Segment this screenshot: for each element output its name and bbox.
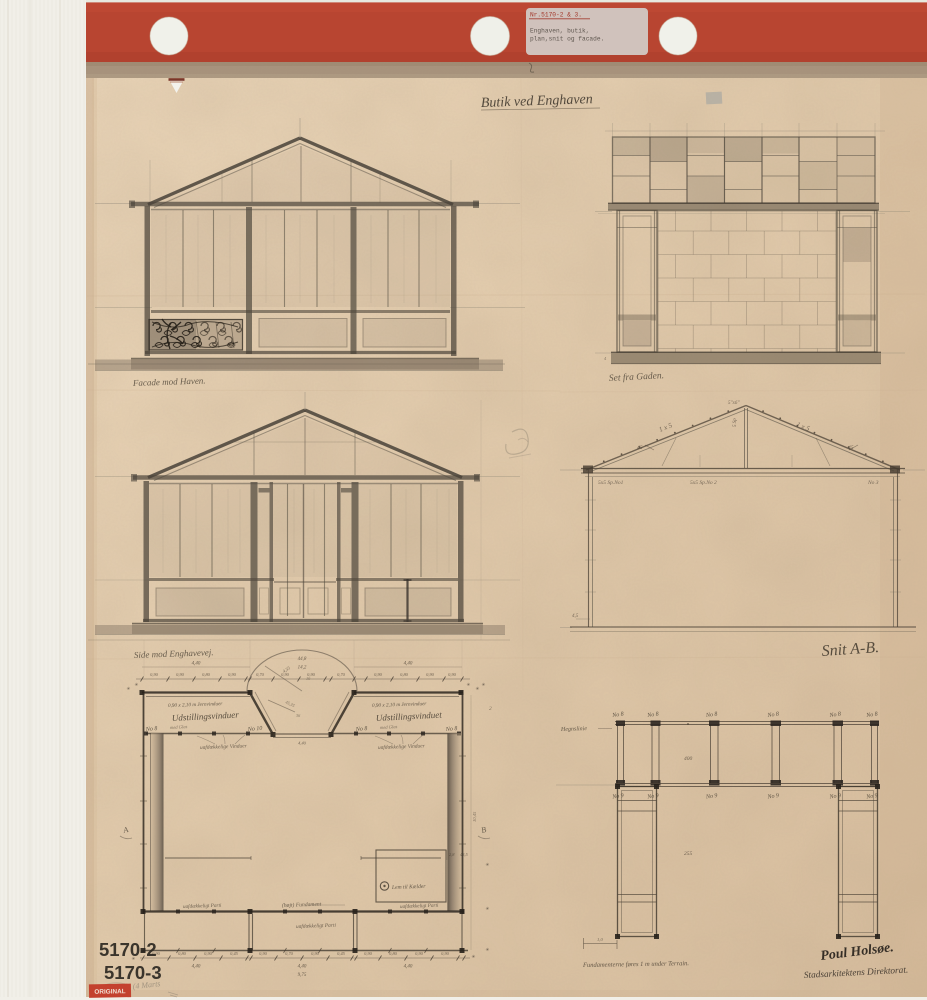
svg-text:44,8: 44,8 [298,657,307,662]
svg-text:5x5 Sp.No 2: 5x5 Sp.No 2 [690,480,717,486]
svg-text:No 3: No 3 [867,480,879,486]
svg-text:uafdækkeligt Parti: uafdækkeligt Parti [400,902,439,910]
svg-text:med Glas: med Glas [170,724,188,730]
svg-text:4,5: 4,5 [572,614,579,619]
svg-text:2: 2 [489,706,492,712]
svg-text:uafdækkeligt Parti: uafdækkeligt Parti [183,902,222,910]
svg-text:4,40: 4,40 [404,662,413,667]
svg-text:45: 45 [637,444,643,451]
svg-text:✳: ✳ [481,682,485,687]
svg-text:5"x6": 5"x6" [728,401,740,406]
svg-text:✳: ✳ [475,686,479,691]
svg-text:400: 400 [684,755,693,762]
svg-text:Hegnslinie: Hegnslinie [560,726,588,733]
svg-text:✳: ✳ [126,686,130,691]
svg-text:Enghaven, butik,: Enghaven, butik, [530,28,589,35]
svg-text:4,40: 4,40 [192,965,201,970]
svg-text:5x5 Sp.No1: 5x5 Sp.No1 [598,480,624,486]
svg-text:4,40: 4,40 [298,965,307,970]
svg-text:ORIGINAL: ORIGINAL [94,988,125,996]
svg-text:plan,snit og facade.: plan,snit og facade. [530,36,604,43]
svg-text:✳: ✳ [134,682,138,687]
svg-text:5 Sp: 5 Sp [733,418,738,427]
svg-text:14,2: 14,2 [298,666,307,671]
svg-text:No 8: No 8 [445,726,458,733]
svg-text:uafdækkeligt Parti: uafdækkeligt Parti [296,922,337,930]
svg-text:✳: ✳ [485,947,489,952]
svg-text:4,40: 4,40 [192,662,201,667]
svg-text:med Glas: med Glas [380,724,398,730]
svg-text:9,75: 9,75 [298,973,307,978]
svg-text:Lem til Kælder: Lem til Kælder [391,884,427,891]
svg-text:✳: ✳ [466,682,470,687]
svg-text:4,40: 4,40 [404,965,413,970]
svg-text:✳: ✳ [485,862,489,867]
svg-text:Nr.5170-2 & 3.: Nr.5170-2 & 3. [530,12,582,19]
svg-text:5170-2: 5170-2 [99,939,157,960]
svg-text:255: 255 [684,851,693,857]
svg-text:✳: ✳ [471,954,475,959]
svg-text:✳: ✳ [485,906,489,911]
